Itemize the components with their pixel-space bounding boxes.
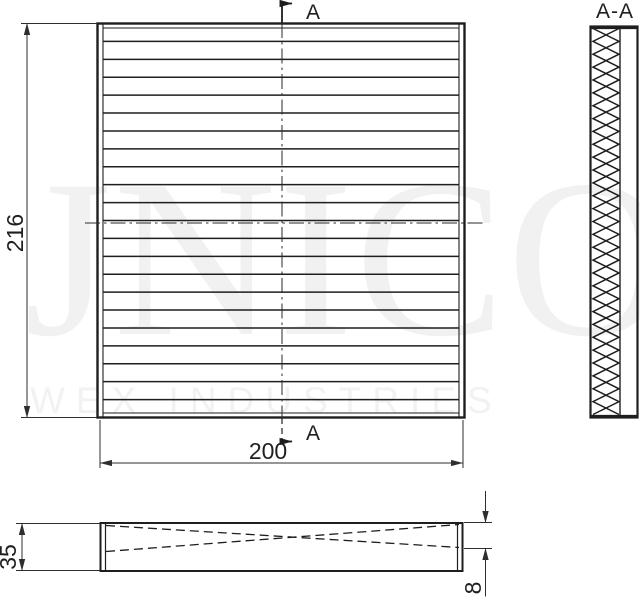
dim-216-value: 216 (2, 214, 28, 252)
cut-marker-top: A (282, 1, 320, 24)
section-view-frame (591, 27, 638, 418)
drawing-canvas: JNICO WEX INDUSTRIES A (0, 0, 640, 597)
dim-200-value: 200 (249, 438, 287, 464)
dim-8-value: 8 (460, 582, 486, 595)
front-view (98, 24, 465, 418)
dimension-edge-depth: 8 (460, 491, 492, 597)
dim-35-value: 35 (0, 544, 21, 570)
dimension-front-width: 200 (100, 420, 463, 468)
section-pleat-zigzag (593, 29, 619, 415)
section-view-title: A-A (596, 0, 634, 23)
side-view (101, 523, 463, 571)
cut-marker-bottom: A (282, 418, 320, 445)
zigzag-media-line (593, 29, 619, 415)
cut-marker-top-label: A (306, 1, 320, 24)
side-view-hidden-taper-line-lower (106, 525, 459, 552)
pleat-lines (103, 41, 459, 399)
section-view: A-A (590, 0, 639, 418)
cut-marker-bottom-label: A (306, 422, 320, 445)
side-view-frame (101, 523, 463, 571)
dimension-front-height: 216 (2, 24, 97, 418)
dimension-side-height: 35 (0, 524, 100, 571)
filter-technical-drawing: A A A-A 216 (0, 0, 640, 597)
